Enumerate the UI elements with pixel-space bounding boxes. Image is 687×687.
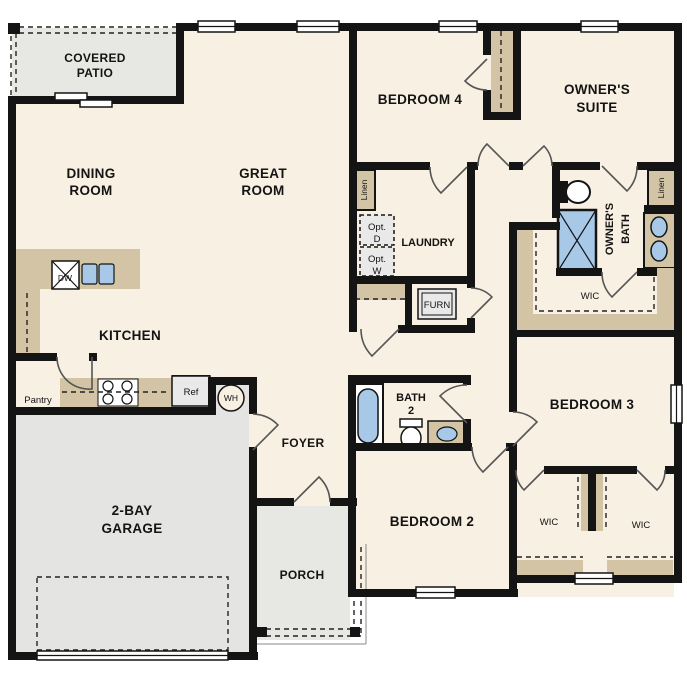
owners-wic-shelf-right (657, 268, 674, 330)
svg-text:GARAGE: GARAGE (101, 521, 162, 536)
kitchen-sink-basin-left (82, 264, 97, 284)
window (198, 21, 235, 32)
kitchen-counter-left (16, 289, 40, 357)
svg-text:BATH: BATH (620, 214, 632, 244)
room-label-owners-bath: OWNER'S (604, 203, 616, 255)
wic3-shelf (607, 560, 673, 577)
room-label-bedroom3: BEDROOM 3 (550, 397, 635, 412)
window (439, 21, 477, 32)
svg-text:2: 2 (408, 405, 414, 417)
floor-plan: WH COVERED PATIO DINING ROOM GREAT ROOM … (0, 0, 687, 687)
toilet2-tank (400, 419, 422, 427)
room-label-dining: DINING (66, 166, 115, 181)
window (297, 21, 339, 32)
wic-divider-shelf-right (596, 474, 603, 531)
room-label-porch: PORCH (280, 568, 325, 582)
svg-text:PATIO: PATIO (77, 66, 113, 80)
bedroom4-closet (491, 31, 513, 112)
label-linen-hall: Linen (359, 179, 369, 200)
svg-text:ROOM: ROOM (241, 183, 284, 198)
room-label-covered-patio: COVERED (64, 51, 125, 65)
bathtub-icon (358, 389, 378, 443)
garage-slab (16, 385, 249, 652)
floor-plan-canvas: WH COVERED PATIO DINING ROOM GREAT ROOM … (0, 0, 687, 687)
window (671, 385, 682, 423)
coat-closet-shelf (353, 284, 405, 300)
room-label-garage: 2-BAY (112, 503, 153, 518)
window (581, 21, 618, 32)
room-label-foyer: FOYER (282, 436, 325, 450)
room-label-bath2: BATH (396, 392, 426, 404)
label-opt-w: Opt. (368, 254, 386, 265)
room-label-laundry: LAUNDRY (401, 237, 455, 249)
owners-wic-shelf-bottom (517, 314, 657, 330)
room-label-owners-suite: OWNER'S (564, 82, 630, 97)
room-label-kitchen: KITCHEN (99, 328, 161, 343)
window (575, 573, 613, 584)
bath2-sink-icon (437, 427, 457, 441)
owners-toilet-icon (566, 181, 590, 203)
label-dishwasher: DW (58, 273, 72, 283)
garage-door (37, 651, 228, 660)
room-label-wic2: WIC (540, 517, 559, 528)
owners-sink-2 (651, 241, 667, 261)
svg-text:W: W (373, 266, 382, 277)
water-heater-icon: WH (218, 385, 244, 411)
room-label-great: GREAT (239, 166, 287, 181)
porch-post-left (257, 627, 267, 637)
label-furnace: FURN (424, 300, 451, 311)
kitchen-sink-basin-right (99, 264, 114, 284)
label-pantry: Pantry (24, 395, 52, 406)
label-opt-d: Opt. (368, 222, 386, 233)
room-label-bedroom4: BEDROOM 4 (378, 92, 463, 107)
room-label-owners-wic: WIC (581, 291, 600, 302)
svg-text:SUITE: SUITE (576, 100, 617, 115)
room-label-wic3: WIC (632, 520, 651, 531)
label-linen-bath: Linen (656, 177, 666, 198)
wic2-shelf (517, 560, 583, 577)
wic-divider-shelf-left (581, 474, 588, 531)
label-refrigerator: Ref (184, 387, 199, 398)
room-label-bedroom2: BEDROOM 2 (390, 514, 474, 529)
owners-sink-1 (651, 217, 667, 237)
svg-text:WH: WH (224, 393, 238, 403)
window (416, 587, 455, 598)
svg-text:D: D (374, 234, 381, 245)
svg-text:ROOM: ROOM (69, 183, 112, 198)
porch-post-right (350, 627, 360, 637)
